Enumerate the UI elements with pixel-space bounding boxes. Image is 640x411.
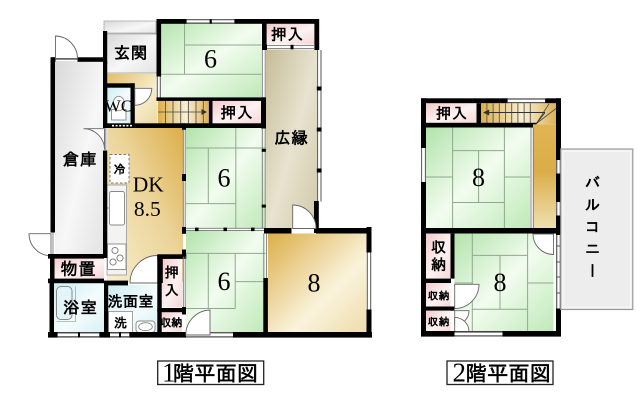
svg-text:DK: DK	[133, 172, 165, 196]
svg-text:8: 8	[308, 269, 321, 298]
svg-text:8.5: 8.5	[134, 197, 161, 221]
svg-text:8: 8	[494, 268, 507, 297]
svg-text:1: 1	[162, 357, 176, 387]
svg-text:2: 2	[453, 357, 467, 387]
svg-text:6: 6	[218, 164, 231, 193]
svg-text:6: 6	[218, 267, 231, 296]
svg-text:WC: WC	[105, 97, 132, 116]
svg-text:6: 6	[204, 45, 217, 74]
svg-text:8: 8	[472, 163, 485, 192]
